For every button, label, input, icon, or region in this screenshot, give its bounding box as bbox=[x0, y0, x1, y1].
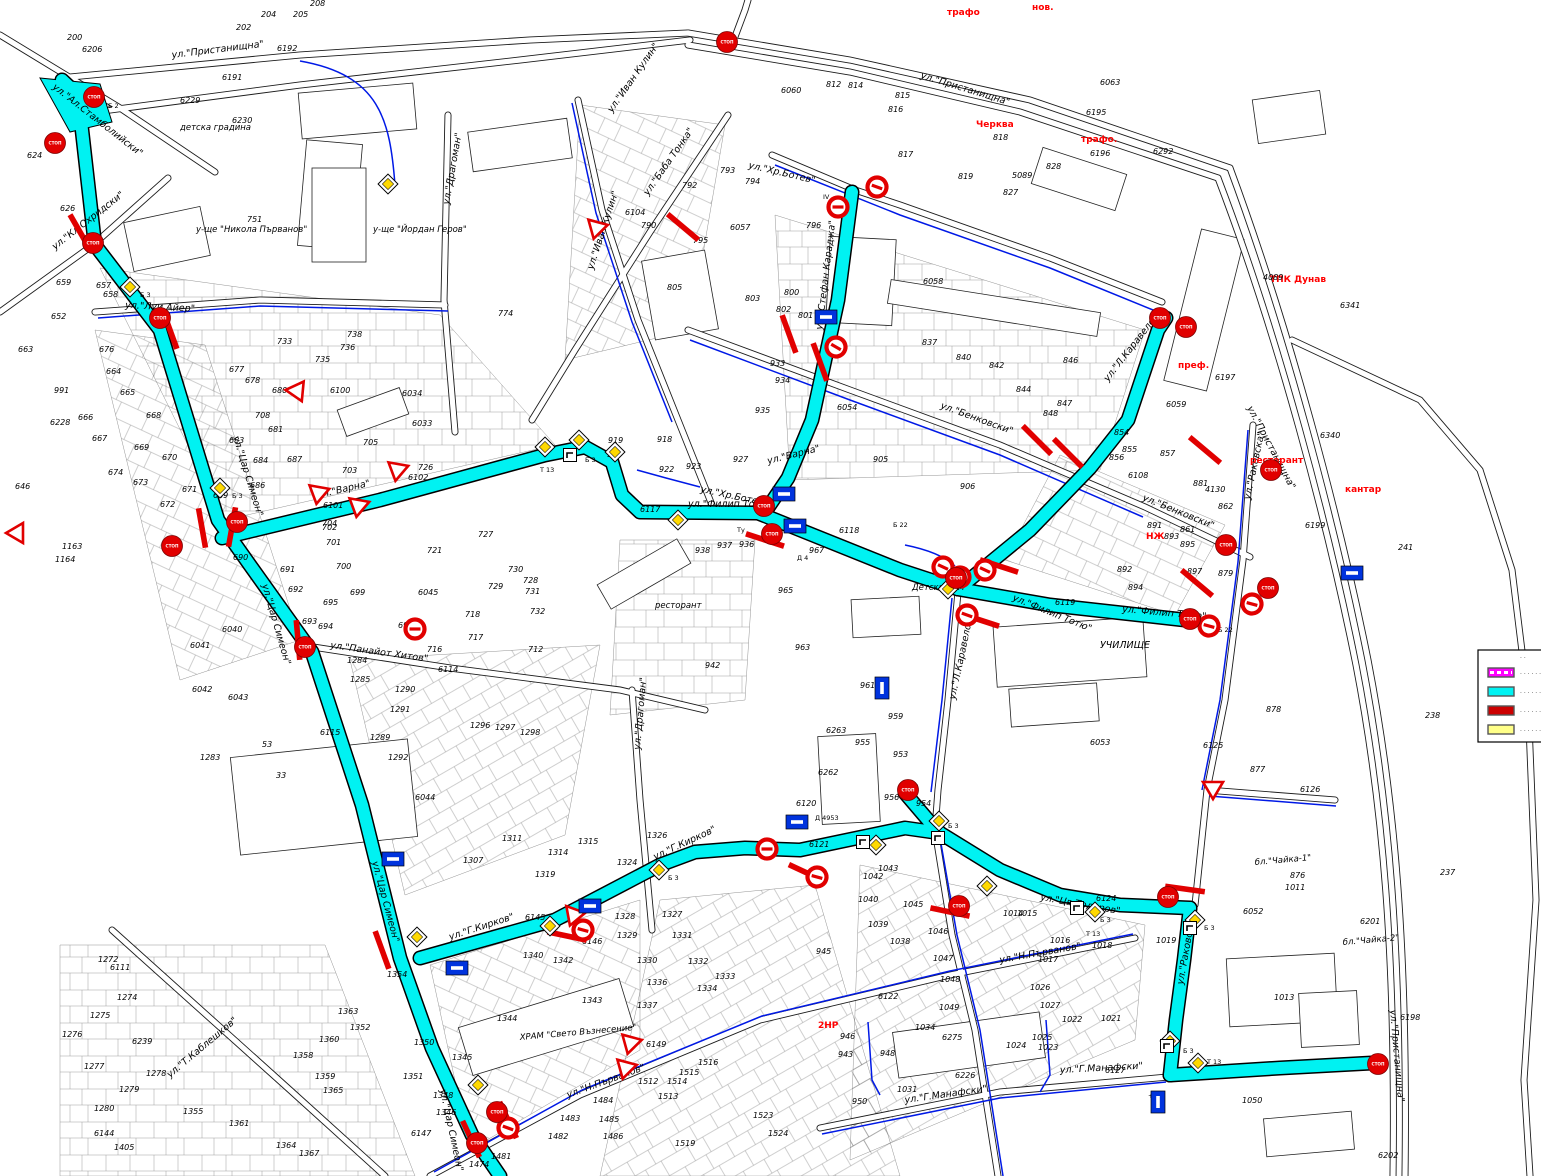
one-way-sign-icon bbox=[382, 852, 404, 866]
parcel-number: 721 bbox=[427, 546, 442, 555]
sign-code-label: Б 3 bbox=[948, 822, 959, 830]
parcel-number: 1342 bbox=[553, 956, 573, 965]
parcel-number: 735 bbox=[315, 355, 330, 364]
parcel-number: 1019 bbox=[1156, 936, 1176, 945]
parcel-number: 1350 bbox=[414, 1038, 434, 1047]
building bbox=[468, 118, 573, 172]
parcel-number: 4130 bbox=[1205, 485, 1225, 494]
parcel-number: 6042 bbox=[192, 685, 212, 694]
parcel-number: 731 bbox=[525, 587, 540, 596]
parcel-number: 827 bbox=[1003, 188, 1019, 197]
parcel-number: 6045 bbox=[418, 588, 438, 597]
one-way-sign-bar bbox=[584, 904, 596, 908]
parcel-number: 894 bbox=[1128, 583, 1143, 592]
parcel-number: 6230 bbox=[232, 116, 252, 125]
poi-label: нов. bbox=[1032, 3, 1054, 13]
stop-sign-label: СТОП bbox=[1262, 586, 1275, 591]
parcel-number: 1332 bbox=[688, 957, 708, 966]
stop-sign-icon: СТОП bbox=[898, 780, 919, 801]
parcel-number: 6122 bbox=[878, 992, 898, 1001]
parcel-number: 684 bbox=[253, 456, 268, 465]
parcel-number: 1513 bbox=[658, 1092, 678, 1101]
stop-sign-icon: СТОП bbox=[84, 87, 105, 108]
parcel-number: 891 bbox=[1147, 521, 1162, 530]
parcel-number: 6043 bbox=[228, 693, 248, 702]
stop-sign-icon: СТОП bbox=[762, 524, 783, 545]
parcel-number: 6033 bbox=[412, 419, 432, 428]
sign-code-label: Б 3 bbox=[1183, 1047, 1194, 1055]
stop-sign-icon: СТОП bbox=[1180, 609, 1201, 630]
stop-sign-icon: СТОП bbox=[754, 496, 775, 517]
parcel-number: 666 bbox=[78, 413, 93, 422]
parcel-number: 842 bbox=[989, 361, 1004, 370]
parcel-number: 671 bbox=[182, 485, 197, 494]
direction-sign-icon bbox=[564, 449, 577, 462]
parcel-number: 1291 bbox=[390, 705, 410, 714]
parcel-number: 892 bbox=[1117, 565, 1132, 574]
parcel-number: 1515 bbox=[679, 1068, 699, 1077]
parcel-number: 1345 bbox=[452, 1053, 472, 1062]
parcel-number: 1337 bbox=[637, 1001, 658, 1010]
parcel-number: 1283 bbox=[200, 753, 220, 762]
parcel-number: 4089 bbox=[1263, 273, 1283, 282]
parcel-number: 1524 bbox=[768, 1129, 788, 1138]
parcel-number: 626 bbox=[60, 204, 75, 213]
parcel-number: 848 bbox=[1043, 409, 1058, 418]
parcel-number: 857 bbox=[1160, 449, 1176, 458]
stop-sign-icon: СТОП bbox=[1158, 887, 1179, 908]
parcel-number: 774 bbox=[498, 309, 513, 318]
parcel-number: 6127 bbox=[1105, 1066, 1126, 1075]
parcel-number: 1484 bbox=[593, 1096, 613, 1105]
parcel-number: 828 bbox=[1046, 162, 1061, 171]
parcel-block bbox=[1005, 455, 1225, 615]
parcel-number: 6053 bbox=[1090, 738, 1110, 747]
parcel-number: 200 bbox=[67, 33, 82, 42]
stop-sign-icon: СТОП bbox=[1368, 1054, 1389, 1075]
direction-sign-body bbox=[1184, 922, 1197, 935]
parcel-number: 796 bbox=[806, 221, 821, 230]
parcel-number: 1340 bbox=[523, 951, 543, 960]
street-label: ресторант bbox=[654, 601, 703, 611]
parcel-number: 687 bbox=[287, 455, 303, 464]
parcel-number: 1483 bbox=[560, 1114, 580, 1123]
parcel-number: 1017 bbox=[1038, 955, 1059, 964]
one-way-sign-icon bbox=[1151, 1091, 1165, 1113]
parcel-number: 1016 bbox=[1050, 936, 1070, 945]
parcel-number: 1013 bbox=[1274, 993, 1294, 1002]
parcel-number: 624 bbox=[27, 151, 42, 160]
parcel-number: 704 bbox=[322, 519, 337, 528]
building bbox=[851, 596, 921, 638]
parcel-number: 938 bbox=[695, 546, 710, 555]
parcel-number: 692 bbox=[288, 585, 303, 594]
parcel-number: 805 bbox=[667, 283, 682, 292]
parcel-number: 728 bbox=[523, 576, 538, 585]
sign-code-label: Б 3 bbox=[1100, 916, 1111, 924]
parcel-number: 905 bbox=[873, 455, 888, 464]
street-label: у-ще "Йордан Геров" bbox=[372, 223, 467, 235]
parcel-number: 667 bbox=[92, 434, 108, 443]
parcel-number: 1405 bbox=[114, 1143, 134, 1152]
legend-swatch bbox=[1488, 687, 1514, 696]
parcel-number: 6114 bbox=[438, 665, 458, 674]
parcel-number: 6341 bbox=[1340, 301, 1360, 310]
parcel-number: 1331 bbox=[672, 931, 692, 940]
stop-sign-icon: СТОП bbox=[487, 1102, 508, 1123]
stop-sign-icon: СТОП bbox=[227, 512, 248, 533]
parcel-number: 1034 bbox=[915, 1023, 935, 1032]
parcel-number: 658 bbox=[103, 290, 118, 299]
yield-sign-icon bbox=[6, 523, 23, 543]
stop-sign-label: СТОП bbox=[166, 544, 179, 549]
building bbox=[1264, 1111, 1355, 1157]
parcel-number: 818 bbox=[993, 133, 1008, 142]
parcel-number: 1485 bbox=[599, 1115, 619, 1124]
parcel-number: 856 bbox=[1109, 453, 1124, 462]
stop-sign-icon: СТОП bbox=[295, 637, 316, 658]
parcel-number: 6059 bbox=[1166, 400, 1186, 409]
parcel-number: 1277 bbox=[84, 1062, 105, 1071]
parcel-number: 237 bbox=[1440, 868, 1456, 877]
parcel-number: 694 bbox=[318, 622, 333, 631]
parcel-number: 1292 bbox=[388, 753, 408, 762]
parcel-number: 1334 bbox=[697, 984, 717, 993]
parcel-number: 6228 bbox=[50, 418, 70, 427]
sign-code-label: Т 13 bbox=[1206, 1058, 1221, 1066]
parcel-number: 1329 bbox=[617, 931, 637, 940]
parcel-number: 1045 bbox=[903, 900, 923, 909]
parcel-number: 959 bbox=[888, 712, 903, 721]
legend-item-label: · · · · · · · bbox=[1520, 671, 1541, 678]
parcel-number: 1363 bbox=[338, 1007, 358, 1016]
parcel-number: 816 bbox=[888, 105, 903, 114]
one-way-sign-bar bbox=[880, 682, 884, 694]
parcel-number: 1516 bbox=[698, 1058, 718, 1067]
direction-sign-icon bbox=[1184, 922, 1197, 935]
stop-sign-label: СТОП bbox=[299, 645, 312, 650]
building bbox=[642, 250, 719, 340]
parcel-number: 708 bbox=[255, 411, 270, 420]
stop-sign-label: СТОП bbox=[231, 520, 244, 525]
building bbox=[818, 734, 881, 825]
parcel-number: 935 bbox=[755, 406, 770, 415]
parcel-number: 6144 bbox=[94, 1129, 114, 1138]
building bbox=[1252, 90, 1325, 143]
direction-sign-icon bbox=[932, 832, 945, 845]
parcel-number: 1050 bbox=[1242, 1096, 1262, 1105]
parcel-number: 6111 bbox=[110, 963, 130, 972]
parcel-number: 965 bbox=[778, 586, 793, 595]
parcel-number: 676 bbox=[99, 345, 114, 354]
parcel-number: 6191 bbox=[222, 73, 242, 82]
no-entry-sign-icon bbox=[1240, 592, 1263, 615]
parcel-number: 792 bbox=[682, 181, 697, 190]
parcel-number: 877 bbox=[1250, 765, 1266, 774]
parcel-number: 669 bbox=[134, 443, 149, 452]
poi-label: НЖ bbox=[1146, 532, 1165, 542]
stop-sign-label: СТОП bbox=[491, 1110, 504, 1115]
parcel-number: 794 bbox=[745, 177, 760, 186]
parcel-number: 819 bbox=[958, 172, 973, 181]
parcel-number: 1279 bbox=[119, 1085, 139, 1094]
parcel-number: 683 bbox=[229, 436, 244, 445]
parcel-number: 6063 bbox=[1100, 78, 1120, 87]
parcel-block bbox=[600, 885, 900, 1176]
parcel-number: 6192 bbox=[277, 44, 297, 53]
parcel-number: 6052 bbox=[1243, 907, 1263, 916]
priority-road-sign-icon bbox=[407, 927, 427, 947]
parcel-number: 6239 bbox=[132, 1037, 152, 1046]
parcel-number: 1038 bbox=[890, 937, 910, 946]
parcel-number: 6198 bbox=[1400, 1013, 1420, 1022]
parcel-number: 670 bbox=[162, 453, 177, 462]
parcel-number: 837 bbox=[922, 338, 938, 347]
sign-code-label: Б 3 bbox=[585, 456, 596, 464]
cadastral-traffic-map: ул."Ал.Стамболийски"ул."Пристанищна"ул."… bbox=[0, 0, 1541, 1176]
parcel-number: 1333 bbox=[715, 972, 735, 981]
parcel-number: 6125 bbox=[1203, 741, 1223, 750]
one-way-sign-icon bbox=[784, 519, 806, 533]
parcel-number: 691 bbox=[280, 565, 295, 574]
street-label: бл."Чайка-1" bbox=[1254, 853, 1311, 868]
parcel-number: 862 bbox=[1218, 502, 1233, 511]
parcel-number: 695 bbox=[323, 598, 338, 607]
parcel-number: 1354 bbox=[387, 970, 407, 979]
stop-sign-icon: СТОП bbox=[1216, 535, 1237, 556]
stop-sign-icon: СТОП bbox=[467, 1133, 488, 1154]
parcel-number: 1482 bbox=[548, 1132, 568, 1141]
parcel-number: 6108 bbox=[1128, 471, 1148, 480]
stop-sign-label: СТОП bbox=[766, 532, 779, 537]
parcel-number: 727 bbox=[478, 530, 494, 539]
parcel-number: 6058 bbox=[923, 277, 943, 286]
one-way-sign-icon bbox=[579, 899, 601, 913]
building bbox=[1299, 991, 1360, 1048]
poi-label: трафо bbox=[947, 8, 980, 18]
direction-sign-icon bbox=[1161, 1040, 1174, 1053]
parcel-number: 1046 bbox=[928, 927, 948, 936]
parcel-number: 659 bbox=[56, 278, 71, 287]
parcel-number: 847 bbox=[1057, 399, 1073, 408]
parcel-number: 1346 bbox=[436, 1108, 456, 1117]
parcel-number: 6102 bbox=[408, 473, 428, 482]
poi-label: Черква bbox=[976, 120, 1014, 130]
direction-sign-icon bbox=[857, 836, 870, 849]
parcel-number: 6115 bbox=[320, 728, 340, 737]
track-far-right bbox=[1292, 340, 1536, 1176]
track-far-right-casing bbox=[1292, 340, 1536, 1176]
parcel-number: 1328 bbox=[615, 912, 635, 921]
direction-sign-icon bbox=[1071, 902, 1084, 915]
parcel-number: 736 bbox=[340, 343, 355, 352]
sign-code-label: Т 13 bbox=[1085, 930, 1100, 938]
stop-sign-label: СТОП bbox=[1265, 468, 1278, 473]
parcel-number: 202 bbox=[236, 23, 251, 32]
parcel-number: 733 bbox=[277, 337, 292, 346]
parcel-number: 1021 bbox=[1101, 1014, 1121, 1023]
building bbox=[993, 617, 1147, 687]
one-way-sign-bar bbox=[1156, 1096, 1160, 1108]
poi-label: 2НР bbox=[818, 1021, 839, 1031]
stop-sign-label: СТОП bbox=[154, 316, 167, 321]
parcel-number: 1355 bbox=[183, 1107, 203, 1116]
parcel-number: 6040 bbox=[222, 625, 242, 634]
parcel-number: 1481 bbox=[491, 1152, 511, 1161]
parcel-number: 6054 bbox=[837, 403, 857, 412]
parcel-block bbox=[60, 945, 415, 1176]
parcel-number: 1326 bbox=[647, 831, 667, 840]
no-entry-sign-icon bbox=[829, 198, 848, 217]
stop-sign-label: СТОП bbox=[49, 141, 62, 146]
parcel-number: 6202 bbox=[1378, 1151, 1398, 1160]
parcel-number: 945 bbox=[816, 947, 831, 956]
stop-sign-icon: СТОП bbox=[717, 32, 738, 53]
parcel-number: 751 bbox=[247, 215, 262, 224]
parcel-number: 1011 bbox=[1285, 883, 1305, 892]
parcel-number: 6149 bbox=[646, 1040, 666, 1049]
parcel-number: 1358 bbox=[293, 1051, 313, 1060]
parcel-number: 664 bbox=[106, 367, 121, 376]
direction-sign-body bbox=[564, 449, 577, 462]
parcel-number: 1048 bbox=[940, 975, 960, 984]
parcel-number: 1024 bbox=[1006, 1041, 1026, 1050]
parcel-number: 800 bbox=[784, 288, 799, 297]
parcel-number: 701 bbox=[326, 538, 341, 547]
parcel-number: 238 bbox=[1425, 711, 1440, 720]
parcel-number: 6041 bbox=[190, 641, 210, 650]
legend-item-label: · · · · · · bbox=[1520, 690, 1541, 697]
legend-item-label: · · · · · · bbox=[1520, 709, 1541, 716]
parcel-number: 208 bbox=[310, 0, 325, 8]
stop-sign-label: СТОП bbox=[953, 904, 966, 909]
parcel-number: 703 bbox=[342, 466, 357, 475]
parcel-number: 1365 bbox=[323, 1086, 343, 1095]
parcel-number: 1164 bbox=[55, 555, 75, 564]
parcel-number: 1319 bbox=[535, 870, 555, 879]
ul-pristanishtna-e2 bbox=[688, 45, 1218, 178]
direction-sign-body bbox=[857, 836, 870, 849]
direction-sign-body bbox=[932, 832, 945, 845]
no-entry-sign-icon bbox=[406, 620, 425, 639]
parcel-number: 946 bbox=[840, 1032, 855, 1041]
parcel-number: 6117 bbox=[640, 505, 661, 514]
ul-pristanishtna-w1 bbox=[60, 33, 688, 78]
legend: · · · · · · ·· · · · · ·· · · · · ·· · ·… bbox=[1478, 650, 1541, 742]
stop-sign-label: СТОП bbox=[950, 576, 963, 581]
legend-swatch bbox=[1488, 725, 1514, 734]
no-entry-sign-icon bbox=[571, 918, 594, 941]
sign-code-label: Т 13 bbox=[539, 466, 554, 474]
stop-sign-label: СТОП bbox=[721, 40, 734, 45]
parcel-number: 1285 bbox=[350, 675, 370, 684]
parcel-number: 699 bbox=[350, 588, 365, 597]
direction-sign-body bbox=[1161, 1040, 1174, 1053]
parcel-number: 6292 bbox=[1153, 147, 1173, 156]
parcel-number: 1514 bbox=[667, 1077, 687, 1086]
parcel-number: 817 bbox=[898, 150, 914, 159]
poi-label: кантар bbox=[1345, 485, 1382, 495]
parcel-number: 895 bbox=[1180, 540, 1195, 549]
parcel-number: 6340 bbox=[1320, 431, 1340, 440]
parcel-number: 705 bbox=[363, 438, 378, 447]
parcel-number: 954 bbox=[916, 799, 931, 808]
sign-code-label: Б 3 bbox=[668, 874, 679, 882]
parcel-number: 738 bbox=[347, 330, 362, 339]
stop-sign-label: СТОП bbox=[87, 241, 100, 246]
direction-sign-body bbox=[1071, 902, 1084, 915]
parcel-number: 922 bbox=[659, 465, 674, 474]
parcel-number: 1298 bbox=[520, 728, 540, 737]
building bbox=[312, 168, 366, 262]
parcel-number: 1275 bbox=[90, 1011, 110, 1020]
stop-sign-icon: СТОП bbox=[946, 568, 967, 589]
parcel-number: 6118 bbox=[839, 526, 859, 535]
parcel-number: 672 bbox=[160, 500, 175, 509]
parcel-number: 963 bbox=[795, 643, 810, 652]
poi-label: преф. bbox=[1178, 361, 1209, 371]
stop-sign-label: СТОП bbox=[1372, 1062, 1385, 1067]
parcel-number: 923 bbox=[686, 462, 701, 471]
parcel-number: 812 bbox=[826, 80, 841, 89]
parcel-number: 1047 bbox=[933, 954, 954, 963]
parcel-number: 6275 bbox=[942, 1033, 962, 1042]
one-way-sign-bar bbox=[791, 820, 803, 824]
parcel-number: 6101 bbox=[323, 501, 343, 510]
parcel-number: 1360 bbox=[319, 1035, 339, 1044]
parcel-number: 790 bbox=[641, 221, 656, 230]
parcel-number: 854 bbox=[1114, 428, 1129, 437]
parcel-number: 953 bbox=[893, 750, 908, 759]
parcel-number: 652 bbox=[51, 312, 66, 321]
parcel-number: 678 bbox=[245, 376, 260, 385]
parcel-number: 204 bbox=[261, 10, 276, 19]
parcel-number: 6147 bbox=[411, 1129, 432, 1138]
parcel-number: 893 bbox=[1164, 532, 1179, 541]
parcel-number: 801 bbox=[798, 311, 813, 320]
one-way-sign-icon bbox=[773, 487, 795, 501]
parcel-number: 6119 bbox=[1055, 598, 1075, 607]
parcel-number: 956 bbox=[884, 793, 899, 802]
parcel-number: 1330 bbox=[637, 956, 657, 965]
parcel-number: 700 bbox=[336, 562, 351, 571]
parcel-number: 6197 bbox=[1215, 373, 1236, 382]
parcel-number: 241 bbox=[1398, 543, 1413, 552]
parcel-number: 1039 bbox=[868, 920, 888, 929]
parcel-number: 6226 bbox=[955, 1071, 975, 1080]
stop-sign-icon: СТОП bbox=[1261, 460, 1282, 481]
parcel-number: 6044 bbox=[415, 793, 435, 802]
parcel-number: 1512 bbox=[638, 1077, 658, 1086]
one-way-sign-icon bbox=[1341, 566, 1363, 580]
parcel-number: 6057 bbox=[730, 223, 751, 232]
parcel-number: 815 bbox=[895, 91, 910, 100]
stop-sign-icon: СТОП bbox=[45, 133, 66, 154]
building bbox=[124, 206, 211, 271]
parcel-number: 1343 bbox=[582, 996, 602, 1005]
parcel-number: 6206 bbox=[82, 45, 102, 54]
parcel-number: 6195 bbox=[1086, 108, 1106, 117]
sign-code-label: Б 3 bbox=[1204, 924, 1215, 932]
sign-code-label: Б 3 bbox=[140, 291, 151, 299]
parcel-number: 879 bbox=[1218, 569, 1233, 578]
parcel-number: 690 bbox=[233, 553, 248, 562]
parcel-number: 1344 bbox=[497, 1014, 517, 1023]
no-entry-sign-icon bbox=[758, 840, 777, 859]
parcel-number: 6034 bbox=[402, 389, 422, 398]
parcel-number: 726 bbox=[418, 463, 433, 472]
parcel-number: 1324 bbox=[617, 858, 637, 867]
